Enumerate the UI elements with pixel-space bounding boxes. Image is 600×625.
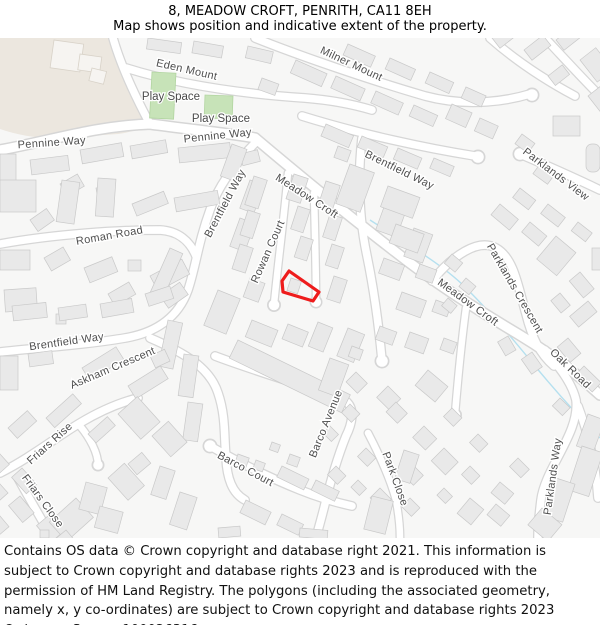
copyright-text: Contains OS data © Crown copyright and d… [4, 542, 596, 625]
area-label-play-space-1: Play Space [142, 91, 200, 103]
footer: Contains OS data © Crown copyright and d… [0, 540, 600, 625]
area-label-play-space-2: Play Space [192, 113, 250, 125]
header: 8, MEADOW CROFT, PENRITH, CA11 8EH Map s… [0, 0, 600, 38]
page-subtitle: Map shows position and indicative extent… [0, 19, 600, 34]
page: 8, MEADOW CROFT, PENRITH, CA11 8EH Map s… [0, 0, 600, 625]
page-title: 8, MEADOW CROFT, PENRITH, CA11 8EH [0, 4, 600, 19]
map-canvas: Eden Mount Pennine Way Pennine Way Milne… [0, 38, 600, 538]
